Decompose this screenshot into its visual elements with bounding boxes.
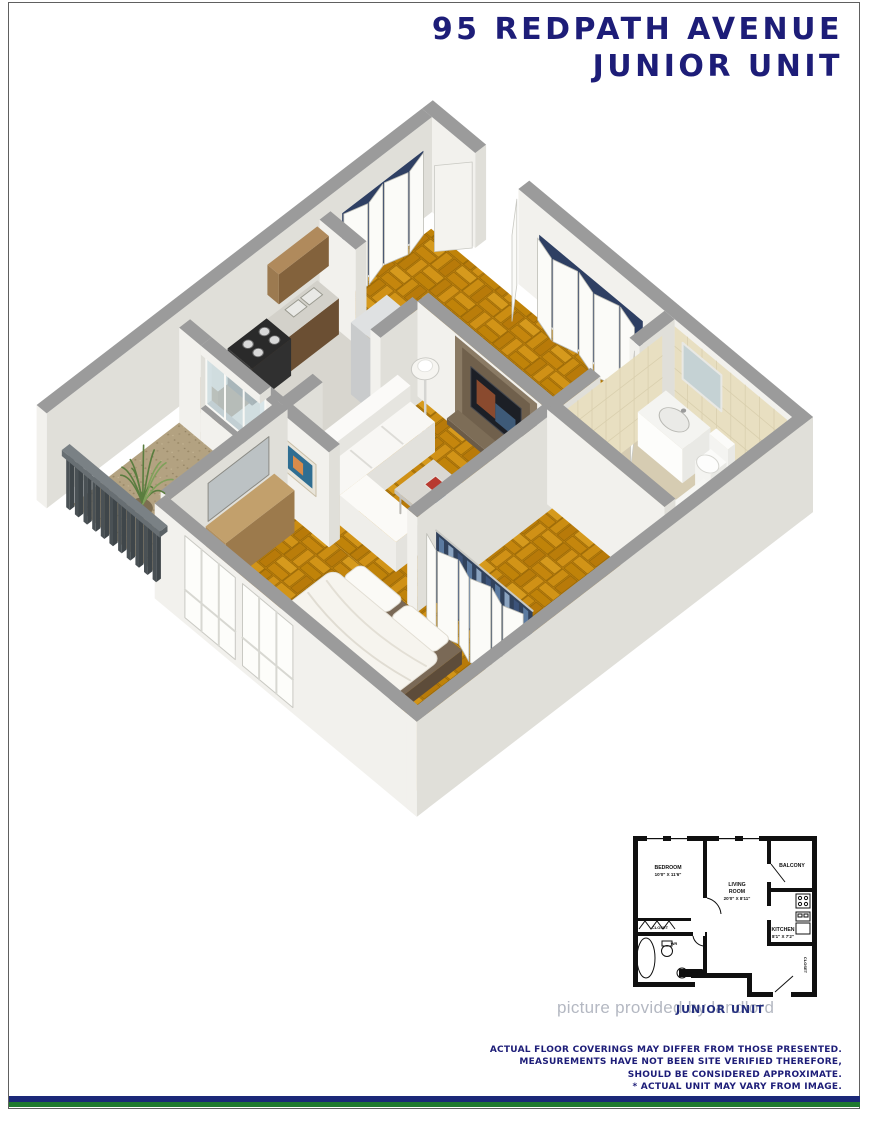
miniplan-living-label-2: ROOM [729, 889, 745, 895]
miniplan-bedroom-closet-label: CLOSET [652, 925, 669, 930]
watermark-unit-label: JUNIOR UNIT [676, 1003, 765, 1016]
miniplan-kitchen-dims: 8'1" X 7'2" [772, 934, 794, 939]
floorplan-2d-miniplan: BEDROOM 10'0" X 11'6" LIVING ROOM 20'0" … [627, 832, 859, 1002]
miniplan-foyer-label: FOYER [684, 971, 698, 976]
disclaimer-line: * ACTUAL UNIT MAY VARY FROM IMAGE. [490, 1081, 842, 1093]
disclaimer-line: ACTUAL FLOOR COVERINGS MAY DIFFER FROM T… [490, 1044, 842, 1056]
page-title: 95 REDPATH AVENUE JUNIOR UNIT [432, 11, 843, 85]
title-line-1: 95 REDPATH AVENUE [432, 11, 843, 48]
miniplan-living-label-1: LIVING [728, 882, 745, 888]
disclaimer-line: MEASUREMENTS HAVE NOT BEEN SITE VERIFIED… [490, 1056, 842, 1068]
miniplan-balcony-label: BALCONY [779, 863, 805, 869]
title-line-2: JUNIOR UNIT [432, 48, 843, 85]
footer-band-green [9, 1102, 860, 1107]
disclaimer-line: SHOULD BE CONSIDERED APPROXIMATE. [490, 1069, 842, 1081]
miniplan-washroom-label: WR [671, 941, 678, 946]
miniplan-bedroom-label: BEDROOM [654, 865, 681, 871]
miniplan-walls [633, 836, 817, 997]
miniplan-kitchen-label: KITCHEN [771, 927, 794, 933]
miniplan-entry-closet-label: CLOSET [803, 957, 808, 974]
miniplan-bedroom-dims: 10'0" X 11'6" [655, 872, 682, 877]
miniplan-living-dims: 20'0" X 8'11" [724, 896, 751, 901]
